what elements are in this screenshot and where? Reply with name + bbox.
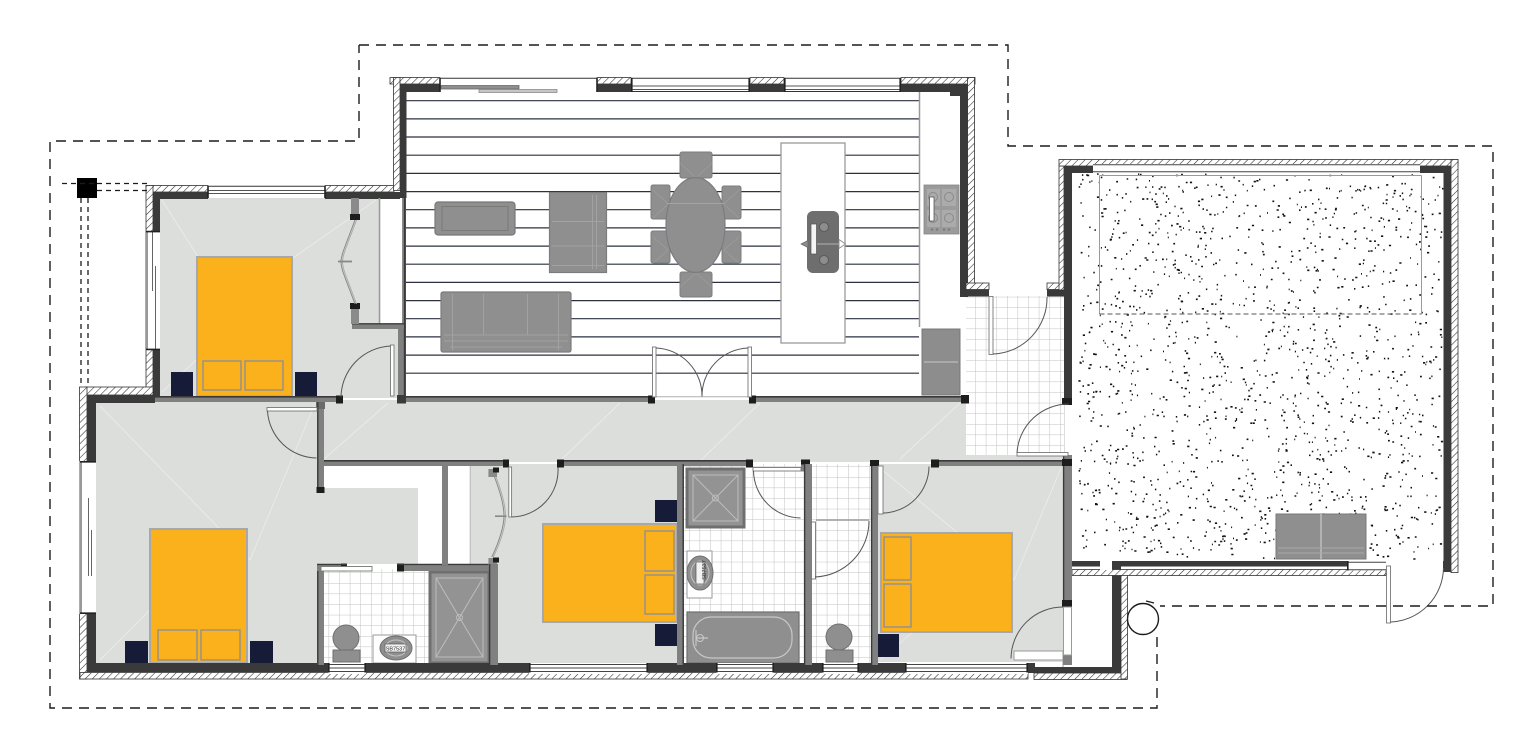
svg-text:SB7537: SB7537 bbox=[386, 647, 406, 653]
svg-text:SB7537: SB7537 bbox=[702, 560, 708, 580]
